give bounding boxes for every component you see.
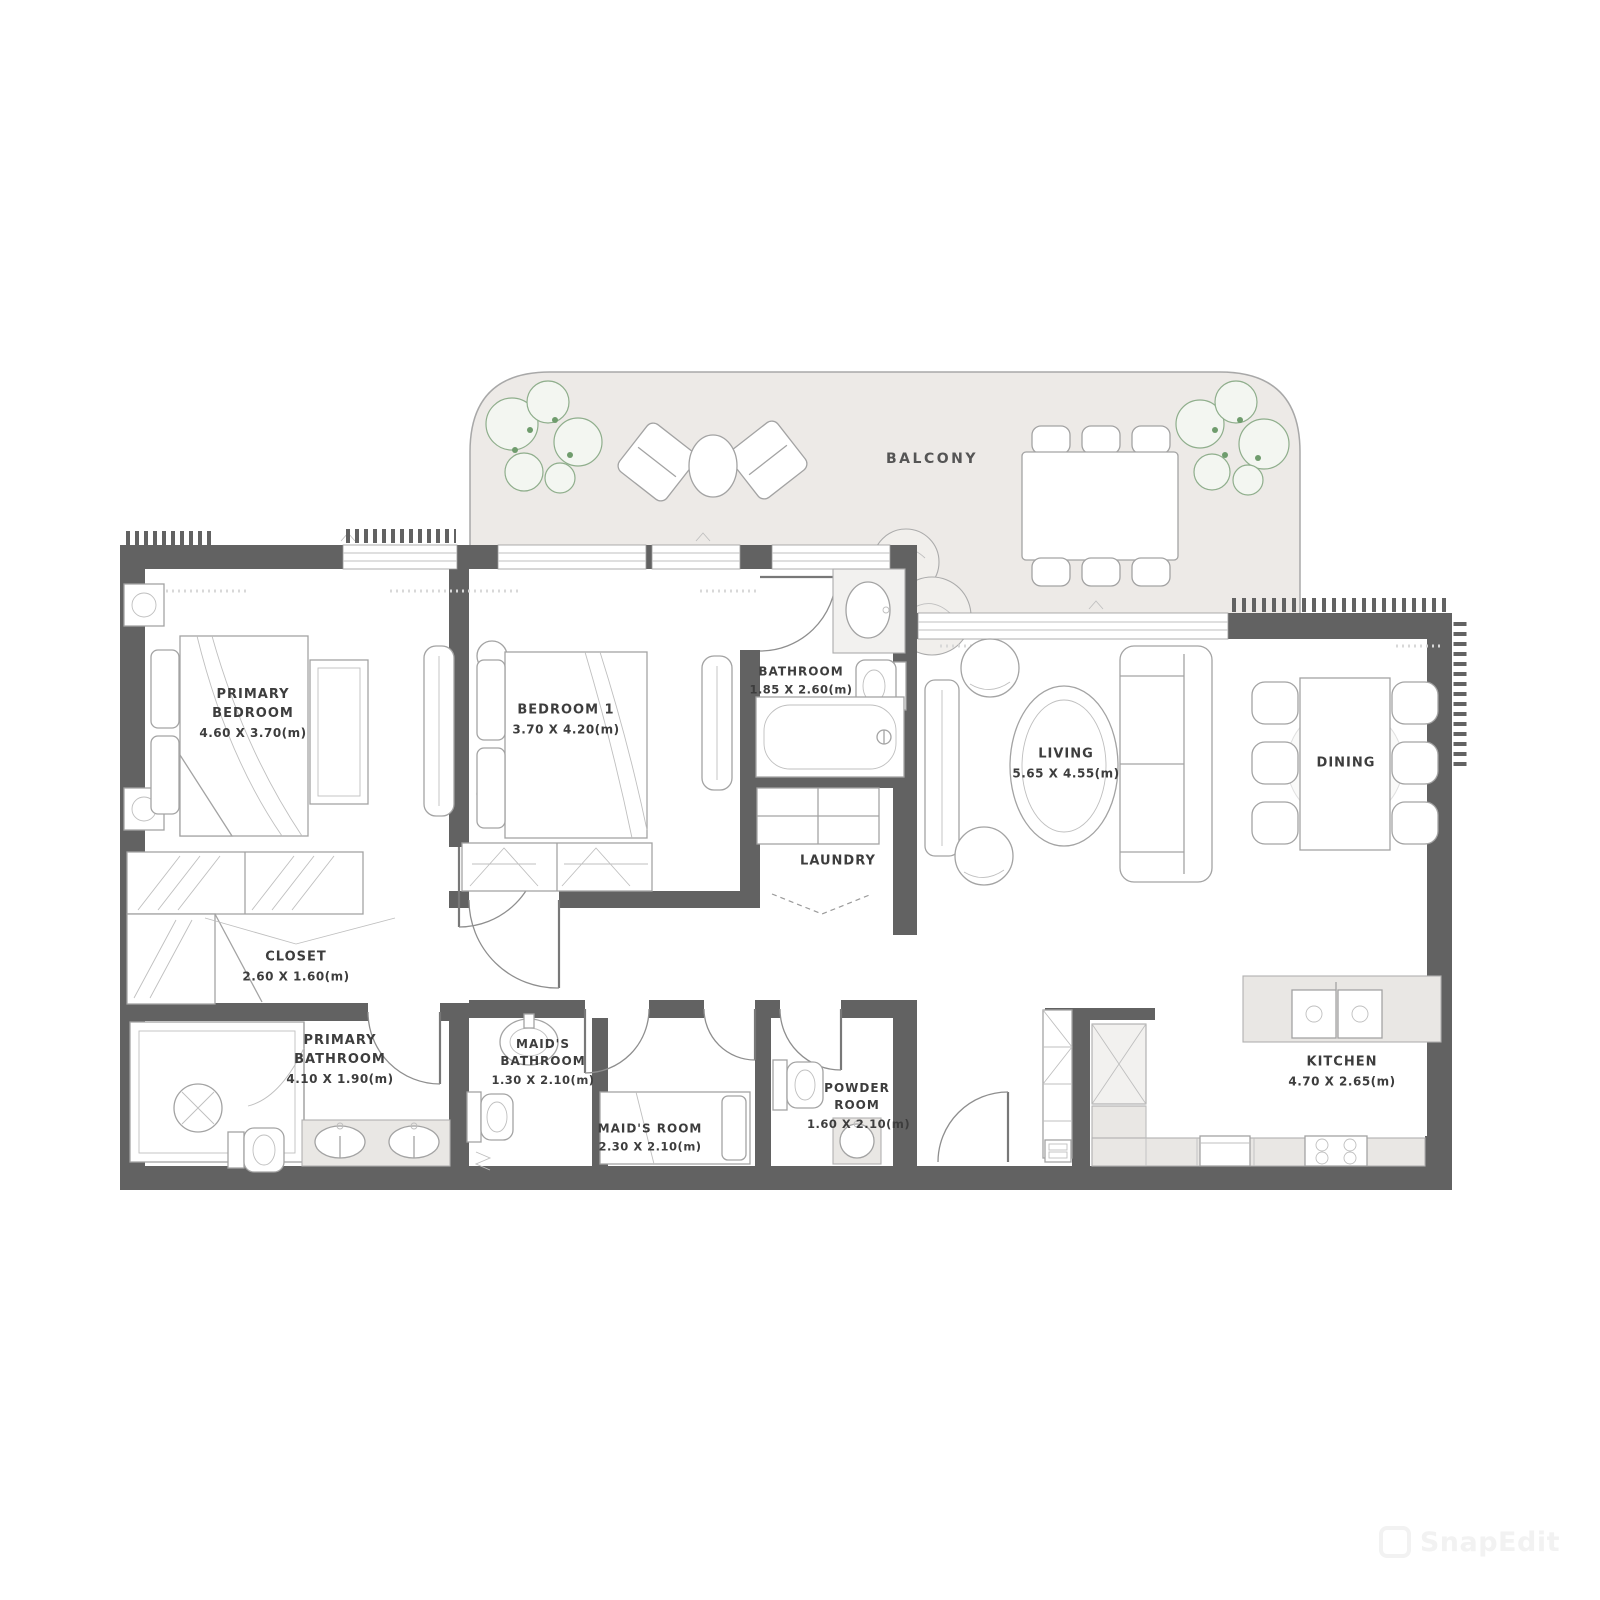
room-name: BATHROOM <box>726 663 876 680</box>
tall-cabinet <box>1043 1010 1072 1162</box>
room-name: POWDER ROOM <box>807 1080 907 1115</box>
room-label-powder-room: POWDER ROOM 1.60 X 2.10(m) <box>807 1080 907 1132</box>
wardrobe <box>462 843 652 891</box>
room-name: PRIMARY BATHROOM <box>280 1032 400 1070</box>
window <box>772 545 890 569</box>
room-label-balcony: BALCONY <box>862 449 1002 469</box>
nightstand <box>124 584 164 626</box>
dining-chair <box>1392 802 1438 844</box>
room-dims: 1.30 X 2.10(m) <box>488 1072 598 1089</box>
room-name: LAUNDRY <box>783 853 893 872</box>
room-name: LIVING <box>996 745 1136 764</box>
double-vanity <box>302 1120 450 1166</box>
window-sliding-door <box>918 613 1228 639</box>
bedroom-1-furniture <box>462 641 732 891</box>
side-table <box>689 435 737 497</box>
room-name: KITCHEN <box>1262 1053 1422 1072</box>
armchair <box>955 827 1013 885</box>
room-dims: 1.60 X 2.10(m) <box>807 1116 907 1133</box>
floor-plan-drawing <box>0 0 1600 1600</box>
room-dims: 5.65 X 4.55(m) <box>996 765 1136 782</box>
room-name: BALCONY <box>862 449 1002 469</box>
room-name: CLOSET <box>216 948 376 967</box>
snapedit-logo-icon <box>1379 1526 1411 1558</box>
room-label-maids-room: MAID'S ROOM 2.30 X 2.10(m) <box>575 1120 725 1155</box>
pantry-cabinet <box>1092 1024 1146 1104</box>
room-label-bathroom: BATHROOM 1.85 X 2.60(m) <box>726 663 876 698</box>
island <box>1243 976 1441 1042</box>
room-name: BEDROOM 1 <box>486 701 646 720</box>
room-dims: 3.70 X 4.20(m) <box>486 721 646 738</box>
pillow <box>477 748 505 828</box>
room-label-maids-bathroom: MAID'S BATHROOM 1.30 X 2.10(m) <box>488 1036 598 1088</box>
laundry-cabinets <box>757 788 879 844</box>
floor-plan: BALCONY PRIMARY BEDROOM 4.60 X 3.70(m) B… <box>0 0 1600 1600</box>
stove <box>1305 1136 1367 1166</box>
room-label-bedroom-1: BEDROOM 1 3.70 X 4.20(m) <box>486 701 646 738</box>
toilet <box>228 1128 284 1172</box>
room-dims: 4.10 X 1.90(m) <box>280 1071 400 1088</box>
room-dims: 4.70 X 2.65(m) <box>1262 1073 1422 1090</box>
room-dims: 4.60 X 3.70(m) <box>193 725 313 742</box>
dining-chair <box>1392 742 1438 784</box>
room-label-dining: DINING <box>1296 755 1396 774</box>
bench <box>310 660 368 804</box>
window <box>652 545 740 569</box>
room-label-primary-bedroom: PRIMARY BEDROOM 4.60 X 3.70(m) <box>193 686 313 742</box>
watermark-snapedit: SnapEdit <box>1379 1526 1560 1558</box>
room-name: MAID'S ROOM <box>575 1120 725 1137</box>
bathtub <box>756 697 904 777</box>
outdoor-dining-set <box>1022 426 1178 586</box>
room-label-laundry: LAUNDRY <box>783 853 893 872</box>
dining-chair <box>1252 682 1298 724</box>
dishwasher <box>1200 1136 1250 1166</box>
room-label-kitchen: KITCHEN 4.70 X 2.65(m) <box>1262 1053 1422 1090</box>
room-name: DINING <box>1296 755 1396 774</box>
window <box>343 545 457 569</box>
pillow <box>722 1096 746 1160</box>
room-label-closet: CLOSET 2.60 X 1.60(m) <box>216 948 376 985</box>
dining-chair <box>1252 742 1298 784</box>
watermark-label: SnapEdit <box>1420 1527 1560 1558</box>
room-name: PRIMARY BEDROOM <box>193 686 313 724</box>
room-name: MAID'S BATHROOM <box>488 1036 598 1071</box>
window <box>498 545 646 569</box>
pillow <box>151 736 179 814</box>
toilet <box>467 1092 513 1142</box>
armchair <box>961 639 1019 697</box>
dining-chair <box>1392 682 1438 724</box>
dining-chair <box>1252 802 1298 844</box>
l-counter <box>1092 1106 1425 1166</box>
room-dims: 1.85 X 2.60(m) <box>726 682 876 699</box>
room-label-living: LIVING 5.65 X 4.55(m) <box>996 745 1136 782</box>
room-dims: 2.60 X 1.60(m) <box>216 968 376 985</box>
pillow <box>151 650 179 728</box>
room-label-primary-bathroom: PRIMARY BATHROOM 4.10 X 1.90(m) <box>280 1032 400 1088</box>
room-dims: 2.30 X 2.10(m) <box>575 1139 725 1156</box>
